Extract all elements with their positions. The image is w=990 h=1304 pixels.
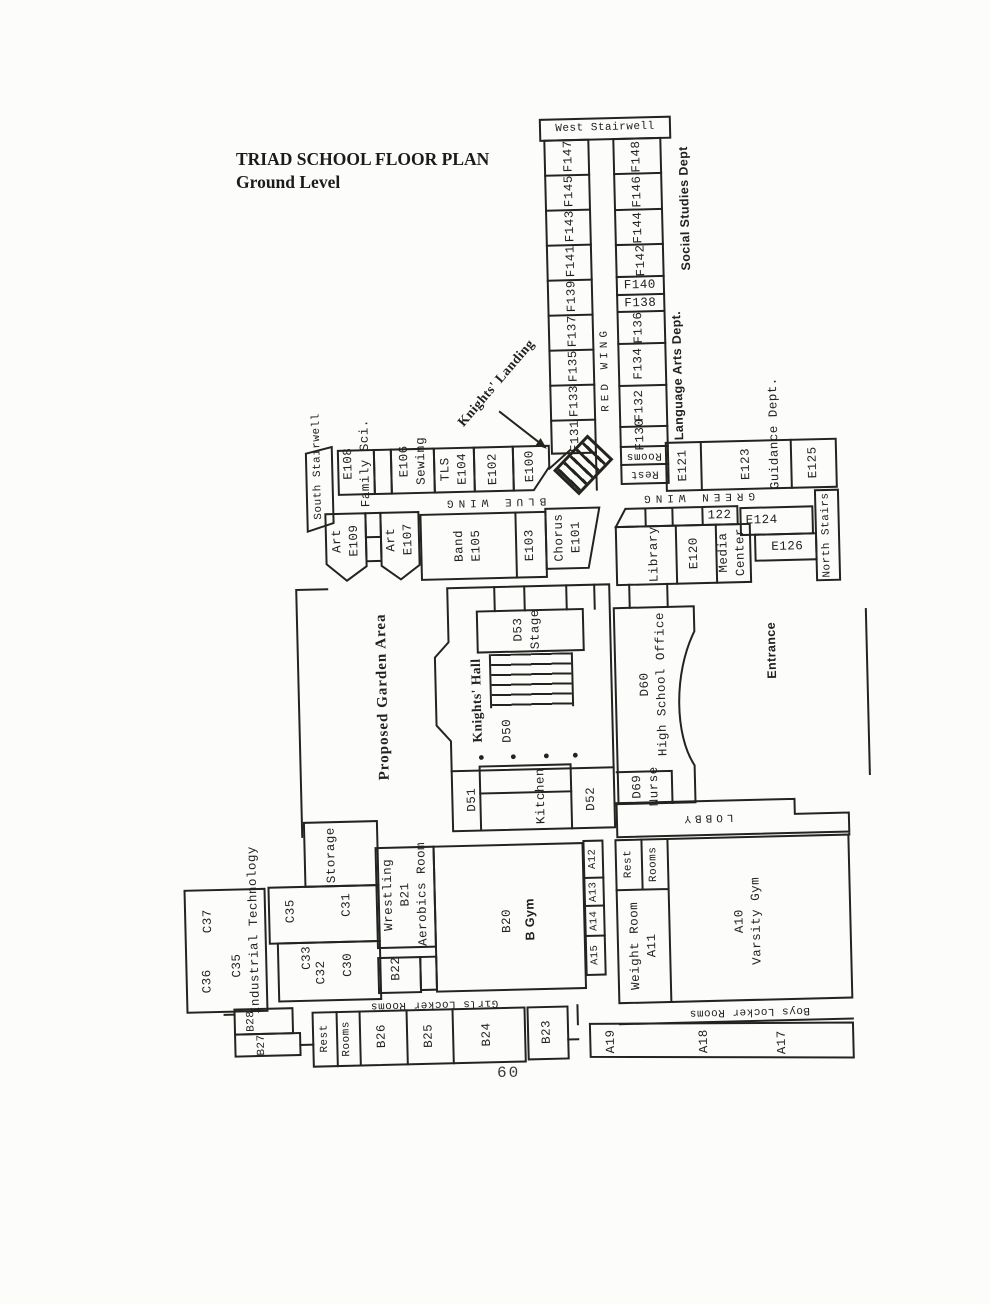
e105-number: E105 bbox=[468, 529, 486, 561]
a10-number: A10 bbox=[730, 877, 749, 965]
red-wing-restrooms-label-rooms: Rooms bbox=[626, 448, 662, 464]
room-label-d50: D50 bbox=[499, 719, 516, 743]
room-label-c37: C37 bbox=[200, 909, 217, 933]
library-label: Library bbox=[645, 526, 663, 582]
north-stairs-label: North Stairs bbox=[819, 492, 836, 578]
room-label-b21: Wrestling B21 Aerobics Room bbox=[379, 842, 432, 947]
e106-name: Sewing bbox=[413, 437, 431, 485]
room-label-d51: D51 bbox=[464, 788, 481, 812]
b-restroom-label-rooms: Rooms bbox=[339, 1021, 355, 1057]
room-label-f130: F130 bbox=[632, 418, 650, 450]
room-label-c35b: C35 bbox=[282, 899, 299, 923]
room-label-b28: B28 bbox=[244, 1010, 259, 1032]
room-label-b20: B20 bbox=[499, 909, 516, 933]
room-label-f140: F140 bbox=[624, 277, 656, 295]
room-label-f146: F146 bbox=[629, 175, 647, 207]
knights-landing-arrow bbox=[500, 411, 547, 450]
media-center-line1: Media bbox=[715, 528, 733, 576]
room-label-b22: B22 bbox=[388, 956, 405, 980]
e101-number: E101 bbox=[567, 513, 585, 561]
e107-name: Art bbox=[383, 523, 401, 555]
room-label-f134: F134 bbox=[630, 347, 648, 379]
kitchen-label: Kitchen bbox=[532, 768, 550, 824]
e101-name: Chorus bbox=[551, 513, 569, 561]
room-label-f131: F131 bbox=[567, 420, 585, 452]
room-label-e101: Chorus E101 bbox=[551, 513, 586, 562]
room-label-c36: C36 bbox=[199, 969, 216, 993]
room-label-a13: A13 bbox=[586, 881, 601, 902]
e104-name: TLS bbox=[437, 453, 455, 485]
room-label-f142: F142 bbox=[632, 244, 650, 276]
room-label-b23: B23 bbox=[538, 1020, 555, 1044]
room-label-c32: C32 bbox=[313, 960, 330, 984]
room-label-f145: F145 bbox=[561, 175, 579, 207]
b21-name2: Aerobics Room bbox=[413, 842, 432, 946]
stage-steps bbox=[489, 652, 574, 708]
room-label-d69: D69 Nurse bbox=[629, 766, 664, 807]
room-label-e107: Art E107 bbox=[383, 523, 418, 556]
room-label-d53: D53 Stage bbox=[510, 609, 545, 650]
room-label-a14: A14 bbox=[587, 910, 602, 931]
language-arts-dept-label: Language Arts Dept. bbox=[668, 311, 688, 441]
scanned-floor-plan-page: TRIAD SCHOOL FLOOR PLAN Ground Level bbox=[0, 0, 990, 1304]
room-label-f132: F132 bbox=[631, 389, 649, 421]
room-label-122: 122 bbox=[707, 507, 731, 524]
a11-name: Weight Room bbox=[626, 902, 645, 990]
d53-number: D53 bbox=[510, 609, 528, 649]
e108-name: Family Sci. bbox=[356, 419, 375, 507]
room-label-b26: B26 bbox=[373, 1024, 390, 1048]
media-center-line2: Center bbox=[732, 528, 750, 576]
d53-name: Stage bbox=[527, 609, 545, 649]
room-label-f143: F143 bbox=[562, 210, 580, 242]
room-label-a11: Weight Room A11 bbox=[626, 901, 662, 990]
a-restroom-label-rooms: Rooms bbox=[646, 846, 662, 882]
room-label-a17: A17 bbox=[774, 1030, 791, 1054]
room-label-d52: D52 bbox=[583, 787, 600, 811]
room-label-e124: E124 bbox=[745, 512, 777, 530]
d69-number: D69 bbox=[629, 766, 647, 806]
e106-number: E106 bbox=[396, 437, 414, 485]
room-label-e125: E125 bbox=[804, 446, 822, 478]
room-label-d60: D60 High School Office bbox=[635, 612, 672, 757]
room-label-e109: Art E109 bbox=[329, 524, 364, 557]
room-label-f137: F137 bbox=[564, 315, 582, 347]
south-stairwell-label: South Stairwell bbox=[309, 413, 326, 520]
proposed-garden-area-label: Proposed Garden Area bbox=[371, 613, 395, 780]
a10-name: Varsity Gym bbox=[747, 877, 766, 965]
d60-name: High School Office bbox=[652, 612, 672, 756]
a11-number: A11 bbox=[643, 901, 662, 989]
room-label-f148: F148 bbox=[628, 140, 646, 172]
room-label-c35: C35 bbox=[229, 953, 246, 977]
e105-name: Band bbox=[451, 530, 469, 562]
storage-label: Storage bbox=[323, 827, 341, 883]
room-label-f139: F139 bbox=[563, 280, 581, 312]
girls-locker-rooms-label: Girls Locker Rooms bbox=[370, 995, 498, 1013]
plan-linework bbox=[0, 0, 990, 1304]
room-label-c30: C30 bbox=[340, 953, 357, 977]
red-wing-restrooms-label-rest: Rest bbox=[630, 466, 659, 482]
b21-name1: Wrestling bbox=[379, 843, 398, 947]
room-label-a12: A12 bbox=[586, 848, 601, 869]
room-label-e121: E121 bbox=[674, 449, 692, 481]
room-label-a18: A18 bbox=[696, 1029, 713, 1053]
red-wing-walls bbox=[540, 117, 679, 491]
page-number: 60 bbox=[497, 1064, 520, 1082]
room-label-f147: F147 bbox=[560, 140, 578, 172]
room-label-f138: F138 bbox=[624, 295, 656, 313]
room-label-f135: F135 bbox=[565, 350, 583, 382]
room-label-e120: E120 bbox=[686, 537, 704, 569]
room-label-e103: E103 bbox=[521, 529, 539, 561]
d69-name: Nurse bbox=[646, 766, 664, 806]
e107-number: E107 bbox=[400, 523, 418, 555]
boys-locker-rooms-label: Boys Locker Rooms bbox=[689, 1002, 810, 1020]
e108-number: E108 bbox=[339, 419, 358, 507]
room-label-f141: F141 bbox=[562, 245, 580, 277]
b-gym-label: B Gym bbox=[521, 898, 539, 941]
west-stairwell-label: West Stairwell bbox=[555, 120, 655, 137]
room-label-e106: E106 Sewing bbox=[396, 437, 431, 486]
room-label-b25: B25 bbox=[420, 1024, 437, 1048]
room-label-e123: E123 bbox=[737, 448, 755, 480]
room-label-e104: TLS E104 bbox=[437, 453, 472, 486]
room-label-e126: E126 bbox=[771, 538, 803, 556]
e109-name: Art bbox=[329, 525, 347, 557]
knights-hall-label: Knights' Hall bbox=[467, 658, 487, 743]
room-label-a10: A10 Varsity Gym bbox=[730, 877, 766, 966]
green-wing-corridor-label: GREEN WING bbox=[639, 487, 755, 505]
red-wing-corridor-label: RED WING bbox=[597, 327, 614, 412]
room-label-e102: E102 bbox=[484, 453, 502, 485]
room-label-f144: F144 bbox=[630, 211, 648, 243]
room-label-f133: F133 bbox=[566, 385, 584, 417]
room-label-b24: B24 bbox=[478, 1022, 495, 1046]
floor-plan: West Stairwell F147 F145 F143 F141 F139 … bbox=[0, 0, 990, 1304]
room-label-a15: A15 bbox=[588, 944, 603, 965]
room-label-f136: F136 bbox=[630, 311, 648, 343]
b-restroom-label-rest: Rest bbox=[317, 1024, 333, 1053]
room-label-b27: B27 bbox=[255, 1034, 270, 1056]
entrance-label: Entrance bbox=[763, 622, 781, 679]
social-studies-dept-label: Social Studies Dept bbox=[675, 146, 695, 271]
room-label-e100: E100 bbox=[521, 450, 539, 482]
guidance-dept-label: Guidance Dept. bbox=[765, 377, 785, 489]
room-label-e105: Band E105 bbox=[451, 529, 486, 562]
e104-number: E104 bbox=[454, 453, 472, 485]
room-label-a19: A19 bbox=[603, 1029, 620, 1053]
room-label-e108: E108 Family Sci. bbox=[339, 419, 375, 508]
a-restroom-label-rest: Rest bbox=[621, 850, 637, 879]
e109-number: E109 bbox=[346, 524, 364, 556]
lobby-label: LOBBY bbox=[680, 809, 733, 825]
media-center-label: Media Center bbox=[715, 528, 750, 577]
blue-wing-corridor-label: BLUE WING bbox=[442, 492, 547, 509]
room-label-c31: C31 bbox=[338, 893, 355, 917]
